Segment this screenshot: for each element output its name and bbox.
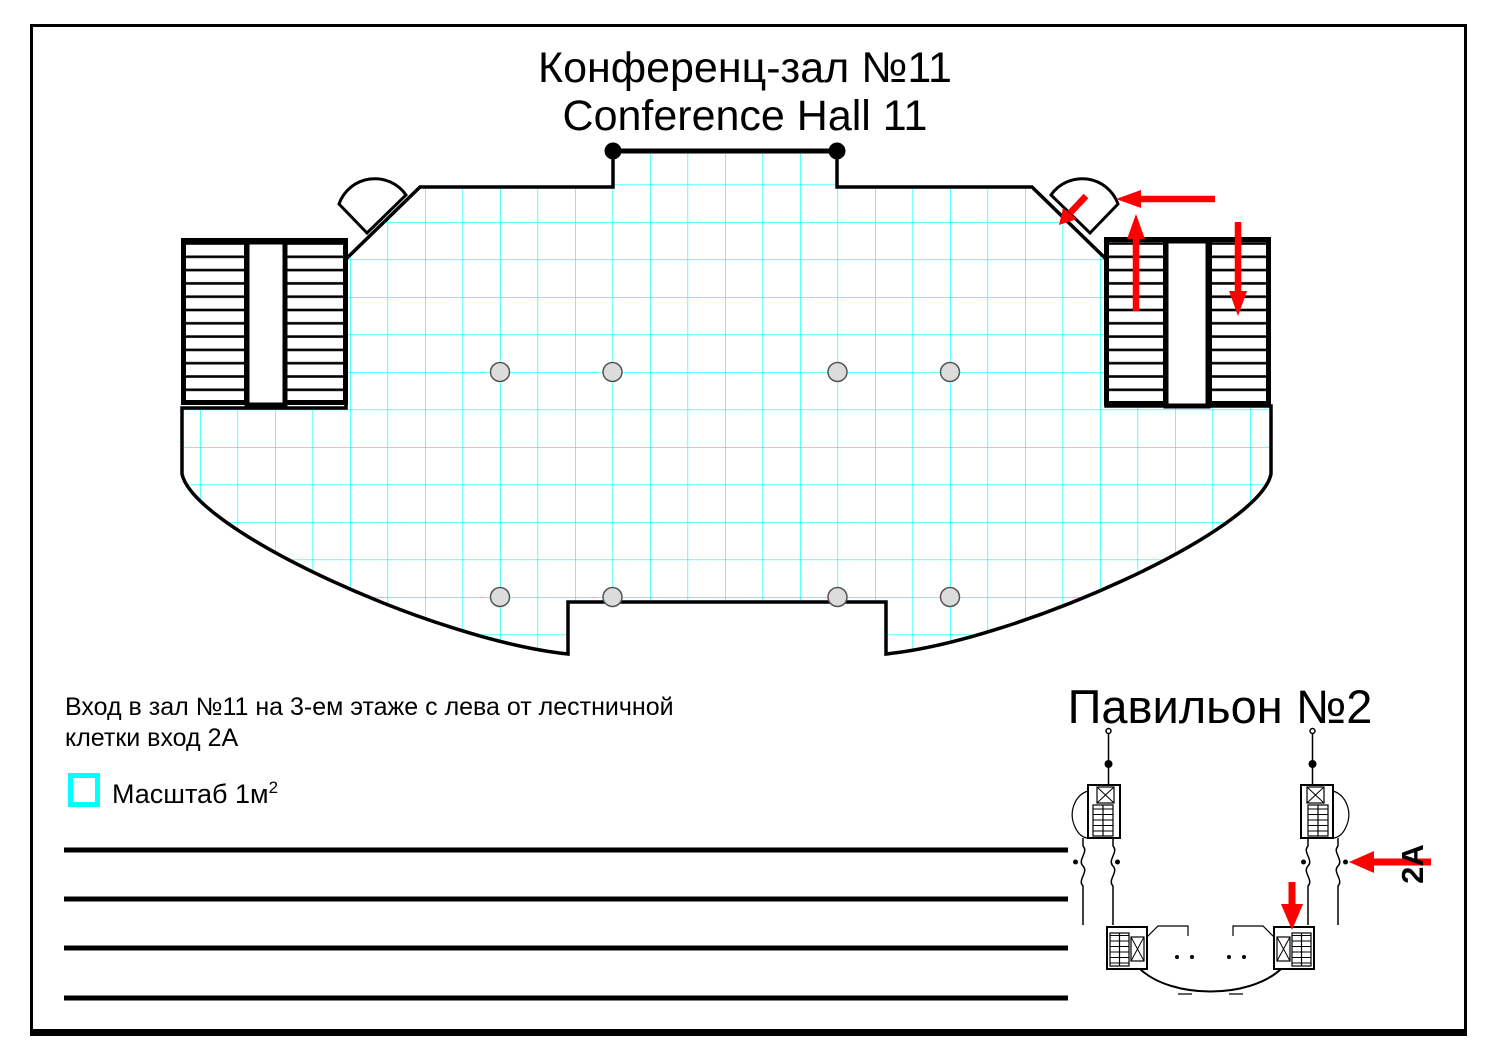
stage-dot-right [829,143,846,160]
stage-dot-left [605,143,622,160]
left-staircase-flight-left [185,242,245,401]
pavilion-bottom-facade [1140,969,1281,992]
divider-lines [64,850,1068,998]
scale-label-sup: 2 [269,778,278,797]
column [491,588,510,607]
column [828,588,847,607]
scale-legend: Масштаб 1м2 [68,771,278,811]
left-staircase-flight-right [286,242,344,401]
pavilion-left-wing [1072,729,1194,970]
antenna-dot [1105,760,1113,768]
floor-plan-svg [0,0,1500,1060]
entrance-2a-label: 2A [1395,841,1431,887]
scale-label-text: Масштаб 1м [112,779,269,809]
column [828,363,847,382]
left-staircase-shaft [247,242,285,405]
pavilion-plan [1072,729,1431,995]
column [603,588,622,607]
page: Конференц-зал №11 Conference Hall 11 [0,0,1500,1060]
column [941,363,960,382]
right-staircase-shaft [1166,241,1208,406]
left-staircase [183,240,346,405]
column [603,363,622,382]
entrance-note: Вход в зал №11 на 3-ем этаже с лева от л… [65,692,674,754]
entrance-note-line1: Вход в зал №11 на 3-ем этаже с лева от л… [65,692,674,723]
pavilion-right-wing [1227,729,1349,970]
scale-label: Масштаб 1м2 [112,771,278,811]
column [491,363,510,382]
pavilion-title: Павильон №2 [1020,682,1420,732]
entrance-note-line2: клетки вход 2А [65,723,674,754]
arrow-left-icon [1116,190,1215,208]
arrow-down-entrance-icon [1281,882,1303,930]
column [941,588,960,607]
right-staircase [1106,239,1269,406]
scale-swatch-icon [68,773,100,807]
